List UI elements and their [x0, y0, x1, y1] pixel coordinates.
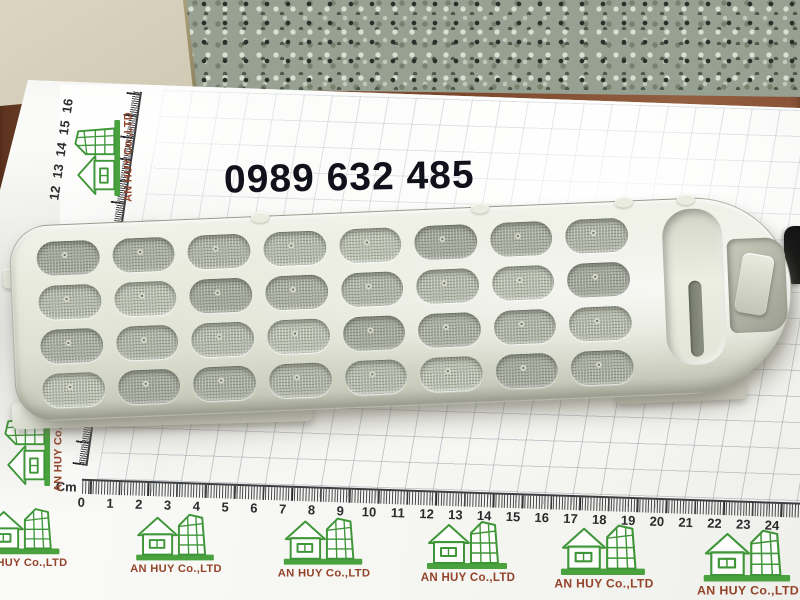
photo-scene: Cm 0123456789101112131415161718192021222…: [0, 0, 800, 600]
mesh-hole: [187, 233, 251, 270]
house-and-building-icon: [134, 509, 217, 563]
mesh-hole: [416, 268, 480, 305]
mesh-hole: [338, 227, 402, 264]
anhuy-logo-watermark: AN HUY Co.,LTD: [420, 516, 516, 584]
mesh-hole: [266, 318, 330, 355]
mesh-hole: [414, 224, 478, 261]
filter-latch-clip: [734, 252, 776, 316]
mesh-hole: [567, 261, 631, 298]
mesh-hole: [342, 315, 406, 352]
house-and-building-icon: [702, 524, 795, 584]
anhuy-logo-text: AN HUY Co.,LTD: [0, 557, 68, 569]
mesh-hole: [340, 271, 404, 308]
molding-bump: [471, 202, 489, 214]
house-and-building-icon: [0, 503, 63, 557]
mesh-hole: [569, 305, 633, 342]
mesh-hole: [38, 284, 102, 321]
mesh-hole: [565, 217, 629, 254]
anhuy-logo-watermark: AN HUY Co.,LTD: [554, 519, 655, 590]
lint-filter-product: [8, 194, 796, 422]
anhuy-logo-watermark: AN HUY Co.,LTD: [696, 524, 800, 597]
anhuy-logo-watermark: AN HUY Co.,LTD: [0, 503, 68, 568]
mesh-hole-grid: [36, 217, 634, 408]
anhuy-logo-text: AN HUY Co.,LTD: [277, 568, 371, 580]
anhuy-logo-watermark: AN HUY Co.,LTD: [70, 111, 135, 202]
house-and-building-icon: [559, 519, 649, 578]
molding-bump: [676, 194, 694, 206]
anhuy-logo-text: AN HUY Co.,LTD: [554, 578, 655, 591]
mesh-hole: [111, 236, 175, 273]
mesh-hole: [191, 321, 255, 358]
anhuy-logo-text: AN HUY Co.,LTD: [696, 585, 800, 598]
mesh-hole: [193, 365, 257, 402]
mesh-hole: [264, 274, 328, 311]
mesh-hole: [117, 368, 181, 405]
mesh-hole: [36, 240, 100, 277]
mesh-hole: [189, 277, 253, 314]
house-and-building-icon: [70, 116, 123, 198]
mesh-hole: [115, 324, 179, 361]
filter-body: [8, 194, 796, 422]
molding-bump: [615, 196, 633, 208]
filter-handle-recess: [661, 208, 727, 366]
mesh-hole: [489, 221, 553, 258]
mesh-hole: [417, 312, 481, 349]
mesh-hole: [263, 230, 327, 267]
filter-latch-notch: [726, 237, 788, 333]
mesh-hole: [113, 280, 177, 317]
mesh-hole: [41, 372, 105, 409]
house-and-building-icon: [425, 516, 511, 572]
anhuy-logo-text: AN HUY Co.,LTD: [123, 111, 134, 202]
granite-countertop: [180, 0, 800, 104]
mesh-hole: [491, 265, 555, 302]
mesh-hole: [40, 328, 104, 365]
mesh-hole: [344, 359, 408, 396]
house-and-building-icon: [282, 513, 366, 568]
anhuy-logo-text: AN HUY Co.,LTD: [129, 563, 222, 575]
mesh-hole: [570, 349, 634, 386]
anhuy-logo-watermark: AN HUY Co.,LTD: [129, 509, 222, 575]
mesh-hole: [493, 309, 557, 346]
mesh-hole: [495, 353, 559, 390]
mesh-hole: [419, 356, 483, 393]
anhuy-logo-text: AN HUY Co.,LTD: [420, 572, 516, 584]
anhuy-logo-watermark: AN HUY Co.,LTD: [277, 513, 371, 580]
molding-bump: [251, 211, 269, 223]
filter-handle-slot: [688, 280, 704, 356]
mesh-hole: [268, 362, 332, 399]
